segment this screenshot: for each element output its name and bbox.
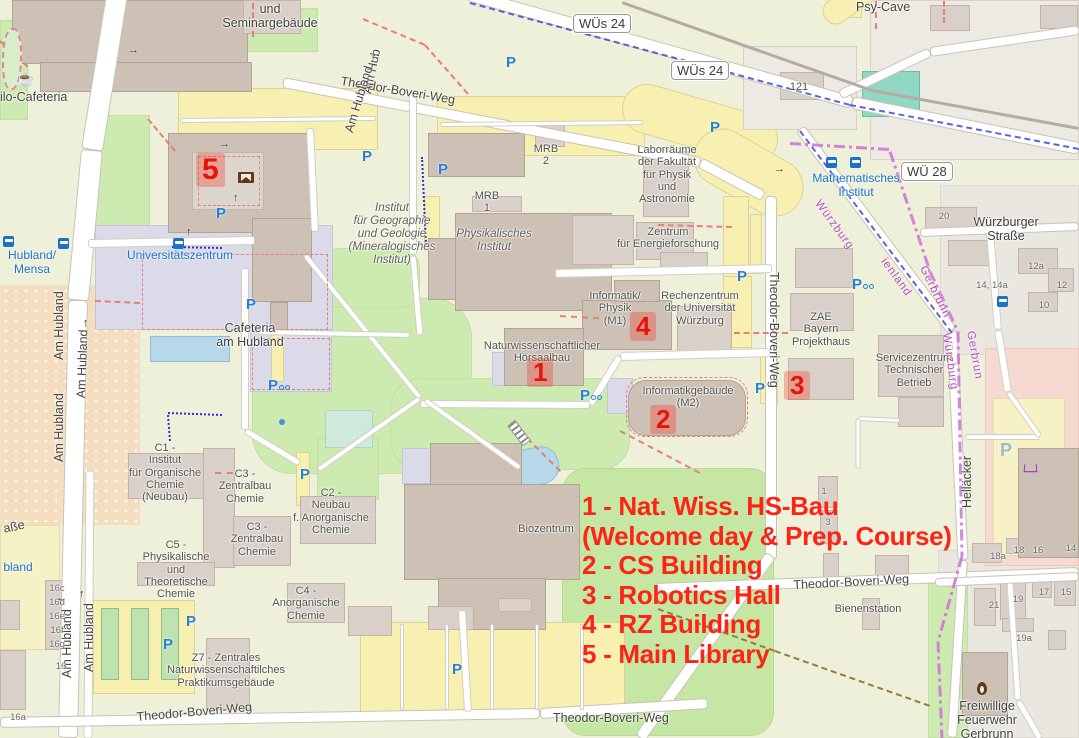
cafe-icon: ☕: [16, 70, 35, 88]
house-number: 16: [56, 661, 67, 672]
place-label: Institut für Geographie und Geologie (Mi…: [349, 202, 436, 266]
place-label: Biozentrum: [518, 523, 574, 535]
transit-stop-label: bland: [3, 561, 32, 575]
map-area-bld: [795, 248, 853, 288]
map-area-bld: [0, 650, 26, 710]
boundary-label: Würzburg: [812, 198, 856, 252]
place-label: Rechenzentrum der Universität Würzburg: [661, 290, 739, 327]
place-label: C4 - Anorganische Chemie: [272, 585, 339, 622]
house-number: 17: [1039, 587, 1050, 598]
oneway-arrow-icon: →: [774, 163, 785, 175]
place-label: C1 - Institut für Organische Chemie (Neu…: [129, 442, 201, 504]
road: [0, 708, 540, 728]
oneway-arrow-icon: ←: [56, 592, 67, 604]
house-number: 15: [1061, 587, 1072, 598]
oneway-arrow-icon: ↑: [233, 192, 239, 204]
map-area-bld: [898, 397, 944, 427]
place-label: Freiwillige Feuerwehr Gerbrunn: [957, 699, 1017, 738]
supermarket-icon: [1024, 463, 1037, 475]
parking-icon: P: [452, 661, 462, 678]
park-and-bike-icon: P: [580, 387, 602, 404]
place-label: Cafeteria am Hubland: [216, 321, 283, 349]
house-number: 12a: [1028, 261, 1044, 272]
place-label: Physikalisches Institut: [456, 228, 531, 254]
map-area-lteal: [325, 410, 373, 448]
place-label: MRB 2: [534, 143, 558, 168]
street-label: Am Hubland: [52, 393, 66, 462]
footpath: [420, 400, 590, 409]
house-number: 16f: [50, 625, 63, 636]
marker-3: 3: [784, 371, 810, 400]
house-number: 14, 14a: [976, 280, 1008, 291]
house-number: 14: [1066, 543, 1077, 554]
map-area-bld2: [430, 443, 522, 489]
parking-icon: P: [1000, 440, 1012, 461]
parking-icon: P: [300, 466, 310, 483]
street-label: Helläcker: [960, 456, 974, 508]
house-number: 16a: [10, 712, 26, 723]
place-label: Philo-Cafeteria: [0, 90, 67, 104]
bus-stop-icon: [58, 238, 69, 249]
route-ref-badge: WÜ 28: [901, 162, 953, 181]
bike-icon: [863, 282, 874, 289]
parking-icon: P: [737, 268, 747, 285]
house-number: 16e: [49, 611, 65, 622]
parking-icon: P: [755, 380, 765, 397]
marker-1: 1: [527, 358, 553, 387]
place-label: ZAE Bayern Projekthaus: [792, 311, 850, 348]
house-number: 12: [1057, 280, 1068, 291]
map-area-bld: [428, 606, 474, 630]
place-label: Würzburger Straße: [973, 215, 1038, 243]
bike-icon: [279, 383, 290, 390]
park-and-bike-icon: P: [852, 276, 874, 293]
footpath: [535, 624, 539, 710]
map-line-rdash: [943, 1, 945, 23]
map-area-bld: [348, 606, 392, 636]
house-number: 16: [1033, 545, 1044, 556]
street-label: Am Hubland→: [74, 317, 91, 399]
street-label: Am Hubland: [52, 291, 66, 360]
map-area-bld2: [40, 62, 252, 92]
footpath: [490, 624, 494, 710]
route-ref-badge: WÜs 24: [573, 14, 631, 33]
marker-5: 5: [196, 153, 225, 187]
park-and-bike-icon: P: [268, 377, 290, 394]
map-area-bld: [0, 600, 20, 630]
fire-station-icon: [977, 682, 987, 695]
parking-icon: P: [216, 205, 226, 222]
footpath: [400, 624, 404, 710]
oneway-arrow-icon: →: [128, 44, 139, 56]
footpath: [445, 624, 449, 710]
map-area-bld: [930, 5, 970, 31]
oneway-arrow-icon: ↑: [79, 588, 85, 600]
house-number: 21: [989, 600, 1000, 611]
map-area-ghs: [131, 608, 149, 680]
place-label: 121: [790, 81, 808, 93]
street-label: Am Hubland: [82, 603, 96, 672]
map-area-ghs: [101, 608, 119, 680]
place-label: C3 - Zentralbau Chemie: [231, 521, 284, 558]
marker-2: 2: [650, 405, 676, 434]
bus-stop-icon: [826, 157, 837, 168]
place-label: Z7 - Zentrales Naturwissenschaftilches P…: [167, 652, 285, 689]
place-label: C5 - Physikalische und Theoretische Chem…: [143, 539, 210, 601]
map-line-rdash: [424, 44, 469, 94]
construction-outline: [142, 254, 328, 330]
bus-stop-icon: [173, 238, 184, 249]
map-area-bld: [948, 240, 992, 266]
place-label: C3 - Zentralbau Chemie: [219, 468, 272, 505]
bike-icon: [591, 393, 602, 400]
house-number: 18a: [990, 551, 1006, 562]
oneway-arrow-icon: ↑: [186, 226, 192, 238]
parking-icon: P: [186, 613, 196, 630]
bus-stop-icon: [3, 236, 14, 247]
legend-annotation: 1 - Nat. Wiss. HS-Bau (Welcome day & Pre…: [582, 492, 952, 669]
transit-stop-label: Universitätszentrum: [127, 249, 233, 263]
house-number: 10: [1039, 300, 1050, 311]
place-label: C2 - Neubau f. Anorganische Chemie: [293, 487, 369, 536]
map-line-bdot: [168, 412, 222, 416]
route-ref-badge: WÜs 24: [671, 61, 729, 80]
bus-stop-icon: [997, 296, 1008, 307]
marker-4: 4: [630, 312, 656, 341]
parking-icon: P: [438, 161, 448, 178]
map-area-bld: [1048, 630, 1066, 650]
house-number: 19: [1013, 594, 1024, 605]
place-label: Servicezentrum Technischer Betrieb: [876, 352, 952, 389]
map-area-bld: [1002, 618, 1034, 632]
parking-icon: P: [163, 636, 173, 653]
parking-icon: P: [246, 296, 256, 313]
library-icon: [238, 172, 254, 183]
map-canvas[interactable]: Theodor-Boveri-WegTheodor-Boveri-WegTheo…: [0, 0, 1079, 738]
house-number: 18: [1014, 545, 1025, 556]
place-label: MRB 1: [475, 190, 499, 215]
place-label: und Seminargebäude: [222, 2, 317, 30]
footpath: [856, 418, 861, 468]
house-number: 19a: [1016, 633, 1032, 644]
street-label: Psy-Cave: [856, 0, 910, 14]
oneway-arrow-icon: →: [219, 138, 230, 150]
place-label: Laborräume der Fakultät für Physik und A…: [637, 144, 696, 206]
transit-stop-label: Mathematisches Institut: [812, 172, 899, 200]
house-number: 16g: [49, 639, 65, 650]
parking-icon: P: [362, 148, 372, 165]
street-label: Theodor-Boveri-Weg: [553, 711, 669, 725]
bus-stop-icon: [850, 157, 861, 168]
house-number: 20: [939, 211, 950, 222]
transit-stop-label: Hubland/ Mensa: [8, 249, 56, 277]
map-line-bdot: [167, 415, 171, 441]
footpath: [858, 416, 900, 423]
parking-icon: P: [506, 54, 516, 71]
map-line-rdash: [363, 18, 426, 46]
map-area-bld: [498, 598, 532, 612]
street-label: Theodor-Boveri-Weg: [767, 272, 781, 388]
poi-dot-icon: [279, 419, 285, 425]
place-label: Zentrum für Energieforschung: [617, 226, 719, 251]
parking-icon: P: [710, 119, 720, 136]
